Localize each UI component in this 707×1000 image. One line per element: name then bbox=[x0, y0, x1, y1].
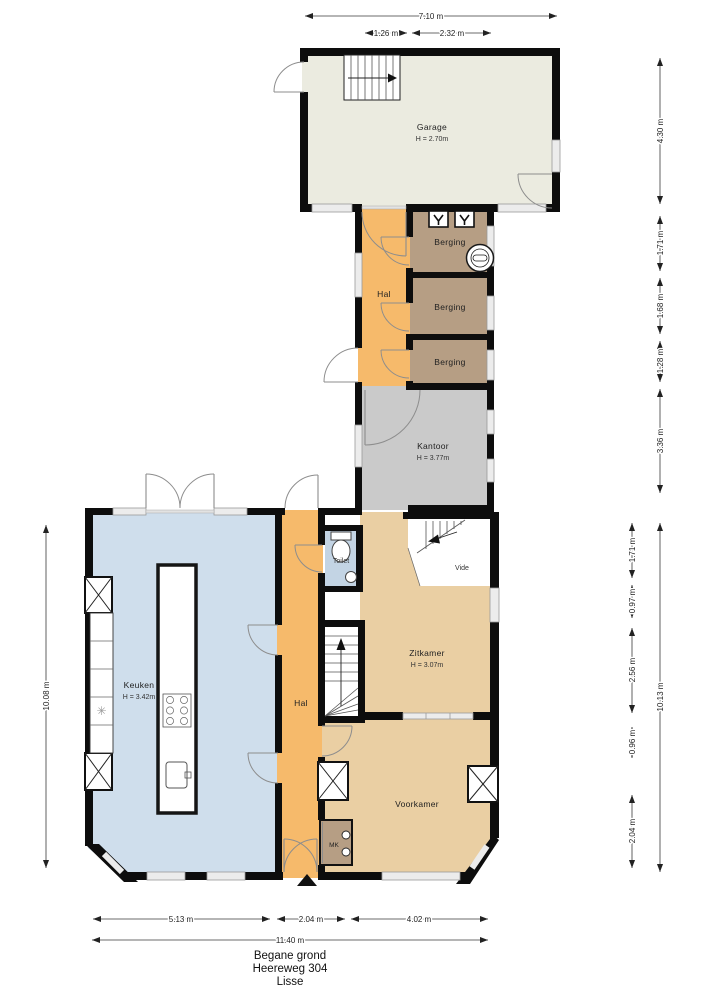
dim-right-berging1: 1.71 m bbox=[656, 216, 665, 271]
keuken-label: Keuken bbox=[124, 680, 155, 690]
ensuite-doors bbox=[403, 713, 473, 719]
svg-text:1.68 m: 1.68 m bbox=[656, 293, 665, 318]
washing-machine-icon bbox=[467, 245, 494, 272]
kantoor-height: H = 3.77m bbox=[417, 455, 450, 462]
dim-right-lower-5: 2.04 m bbox=[628, 795, 637, 868]
kantoor-label: Kantoor bbox=[417, 441, 449, 451]
svg-text:4.02 m: 4.02 m bbox=[407, 915, 432, 924]
svg-text:11.40 m: 11.40 m bbox=[276, 936, 305, 945]
dim-top-sub2: 2.32 m bbox=[412, 29, 491, 38]
dim-left-total: 10.08 m bbox=[42, 525, 51, 868]
svg-text:4.30 m: 4.30 m bbox=[656, 118, 665, 143]
svg-text:10.13 m: 10.13 m bbox=[656, 682, 665, 711]
hand-basin-icon bbox=[346, 572, 357, 583]
stairwell-floor bbox=[323, 625, 360, 718]
berging-3-label: Berging bbox=[434, 357, 465, 367]
dim-right-garage: 4.30 m bbox=[656, 58, 665, 204]
hal-side-exit-door bbox=[324, 348, 358, 382]
dim-right-berging2: 1.68 m bbox=[656, 278, 665, 334]
floorplan-page: ✳ bbox=[0, 0, 707, 1000]
zitkamer-label: Zitkamer bbox=[409, 648, 444, 658]
berging-2-label: Berging bbox=[434, 302, 465, 312]
toilet-label: Toilet bbox=[333, 558, 349, 565]
chimney-icon bbox=[468, 766, 498, 802]
plan-title: Begane grond Heereweg 304 Lisse bbox=[253, 950, 328, 988]
chimney-icon bbox=[318, 762, 348, 800]
dim-right-lower-total: 10.13 m bbox=[656, 523, 665, 872]
kitchen-cabinets: ✳ bbox=[90, 613, 113, 753]
dim-bottom-3: 4.02 m bbox=[351, 915, 488, 924]
svg-text:10.08 m: 10.08 m bbox=[42, 681, 51, 710]
svg-text:1.71 m: 1.71 m bbox=[628, 537, 637, 562]
voorkamer-label: Voorkamer bbox=[395, 799, 439, 809]
garage-height: H = 2.70m bbox=[416, 136, 449, 143]
room-vide bbox=[408, 518, 492, 586]
svg-text:0.97 m: 0.97 m bbox=[628, 588, 637, 613]
keuken-height: H = 3.42m bbox=[123, 694, 156, 701]
svg-text:0.96 m: 0.96 m bbox=[628, 729, 637, 754]
ventilation-icon bbox=[429, 211, 448, 227]
zitkamer-height: H = 3.07m bbox=[411, 662, 444, 669]
floorplan-svg: ✳ bbox=[0, 0, 707, 1000]
svg-text:1.28 m: 1.28 m bbox=[656, 348, 665, 373]
svg-text:2.04 m: 2.04 m bbox=[628, 818, 637, 843]
ventilation-icon bbox=[455, 211, 474, 227]
meterkast-label: MK bbox=[329, 842, 339, 849]
dim-bottom-1: 5.13 m bbox=[93, 915, 270, 924]
dim-right-kantoor: 3.36 m bbox=[656, 389, 665, 493]
dim-right-lower-3: 2.56 m bbox=[628, 628, 637, 713]
title-city: Lisse bbox=[277, 976, 304, 988]
title-street: Heereweg 304 bbox=[253, 963, 328, 975]
chimney-icon bbox=[85, 753, 112, 790]
svg-text:2.32 m: 2.32 m bbox=[440, 29, 465, 38]
dim-right-lower-4: 0.96 m bbox=[628, 727, 637, 758]
extractor-icon: ✳ bbox=[96, 704, 106, 718]
dim-right-lower-2: 0.97 m bbox=[628, 585, 637, 618]
dim-bottom-total: 11.40 m bbox=[92, 936, 488, 945]
vide-label: Vide bbox=[455, 565, 469, 572]
sink-icon bbox=[166, 762, 191, 788]
svg-text:3.36 m: 3.36 m bbox=[656, 428, 665, 453]
garage-stairs-icon bbox=[344, 55, 400, 100]
svg-text:2.56 m: 2.56 m bbox=[628, 657, 637, 682]
hal-top-label: Hal bbox=[377, 289, 391, 299]
berging-1-label: Berging bbox=[434, 237, 465, 247]
title-floor: Begane grond bbox=[254, 950, 326, 962]
svg-text:7.10 m: 7.10 m bbox=[419, 12, 444, 21]
svg-text:1.26 m: 1.26 m bbox=[374, 29, 399, 38]
room-hal-bottom bbox=[277, 510, 323, 878]
hal-bottom-label: Hal bbox=[294, 698, 308, 708]
keuken-french-doors bbox=[146, 474, 214, 508]
garage-label: Garage bbox=[417, 122, 447, 132]
svg-text:2.04 m: 2.04 m bbox=[299, 915, 324, 924]
svg-text:1.71 m: 1.71 m bbox=[656, 230, 665, 255]
garage-left-door bbox=[274, 62, 304, 92]
svg-text:5.13 m: 5.13 m bbox=[169, 915, 194, 924]
hal-garden-door bbox=[285, 475, 318, 508]
chimney-icon bbox=[85, 577, 112, 613]
dim-bottom-2: 2.04 m bbox=[277, 915, 345, 924]
dim-top-sub1: 1.26 m bbox=[365, 29, 407, 38]
dim-top-total: 7.10 m bbox=[305, 12, 557, 21]
kitchen-island bbox=[158, 565, 196, 813]
dim-right-lower-1: 1.71 m bbox=[628, 523, 637, 578]
dim-right-berging3: 1.28 m bbox=[656, 341, 665, 382]
